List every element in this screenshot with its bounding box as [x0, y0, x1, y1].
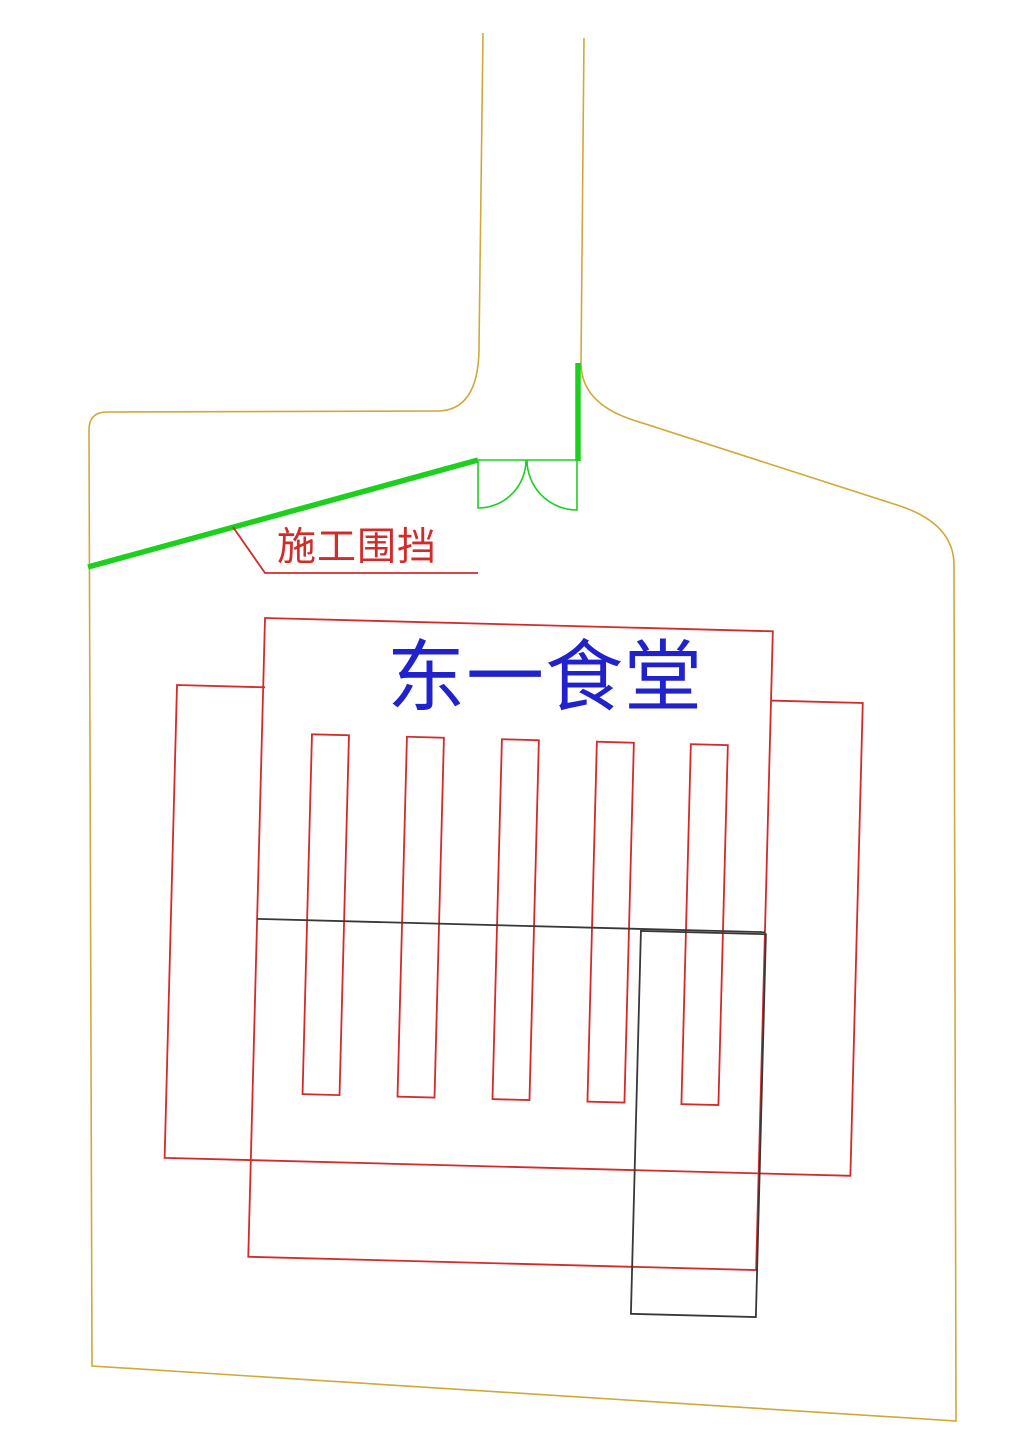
site-plan-drawing [0, 0, 1024, 1446]
fence-annotation-label: 施工围挡 [277, 528, 437, 569]
roof-strip-4 [587, 742, 633, 1103]
roof-strip-1 [303, 734, 349, 1095]
roof-strip-5 [681, 744, 727, 1105]
site-boundary-and-road-outline [89, 33, 956, 1421]
site-plan-canvas: 施工围挡 东一食堂 [0, 0, 1024, 1446]
outer-building-outline [165, 685, 863, 1176]
annex-outline [631, 931, 766, 1317]
building-division-line [257, 919, 765, 932]
gate-double-door-symbol [478, 460, 577, 510]
roof-strip-2 [398, 737, 444, 1098]
building-title-label: 东一食堂 [387, 636, 703, 720]
outer-building-outline-group [165, 685, 863, 1176]
roof-strip-3 [492, 739, 538, 1100]
